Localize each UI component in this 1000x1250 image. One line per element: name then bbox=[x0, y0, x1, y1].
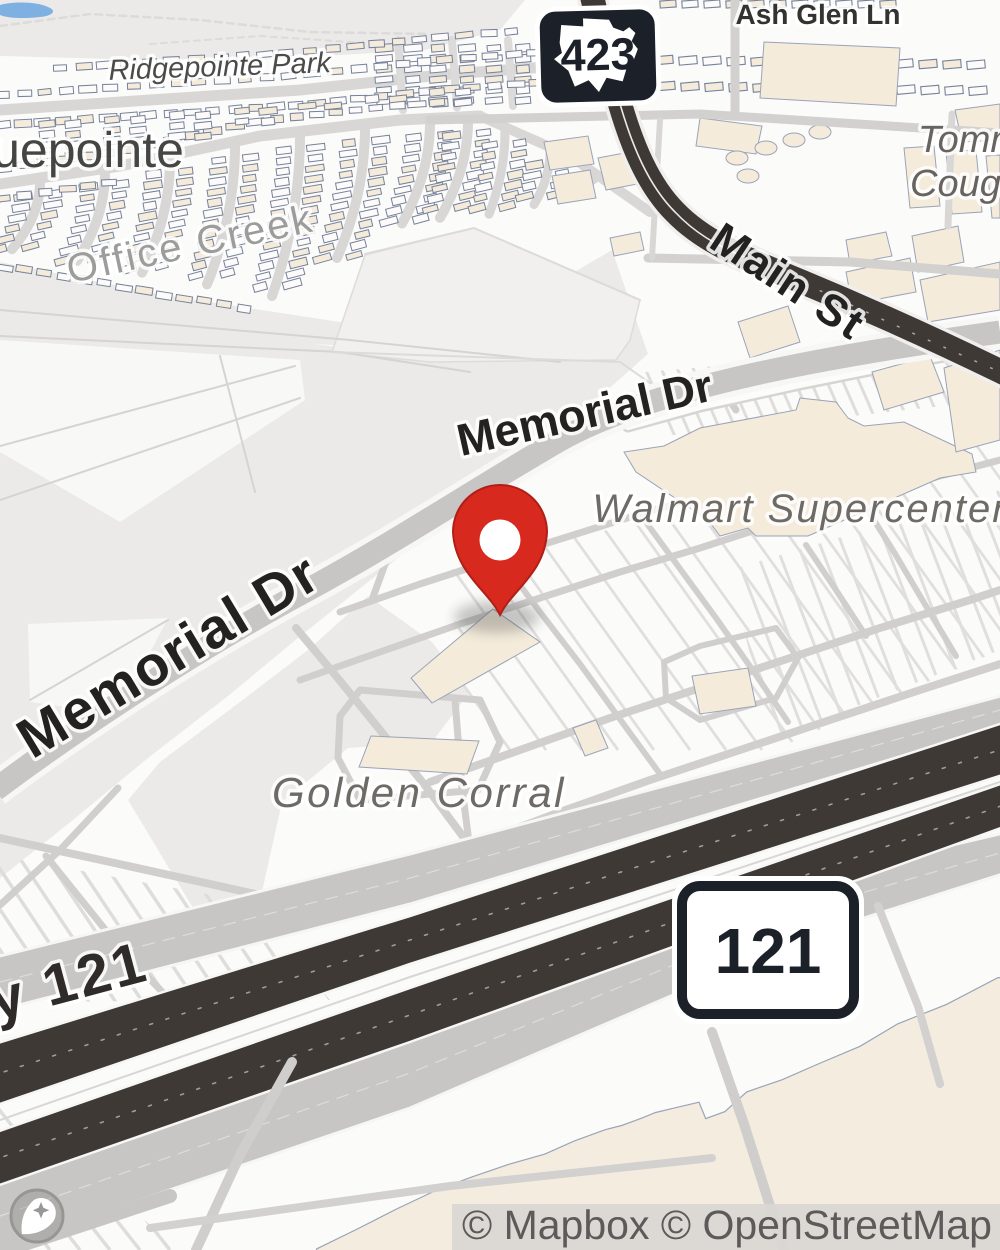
svg-text:Golden Corral: Golden Corral bbox=[272, 769, 566, 816]
svg-text:121: 121 bbox=[715, 915, 822, 987]
svg-text:© Mapbox © OpenStreetMap: © Mapbox © OpenStreetMap bbox=[462, 1202, 992, 1248]
svg-text:Tomm: Tomm bbox=[918, 119, 1000, 161]
svg-text:uepointe: uepointe bbox=[0, 122, 184, 178]
svg-text:Couga: Couga bbox=[910, 163, 1000, 205]
svg-text:Ash Glen Ln: Ash Glen Ln bbox=[736, 0, 901, 30]
svg-text:Walmart Supercenter: Walmart Supercenter bbox=[592, 487, 1000, 531]
svg-text:423: 423 bbox=[560, 28, 636, 81]
